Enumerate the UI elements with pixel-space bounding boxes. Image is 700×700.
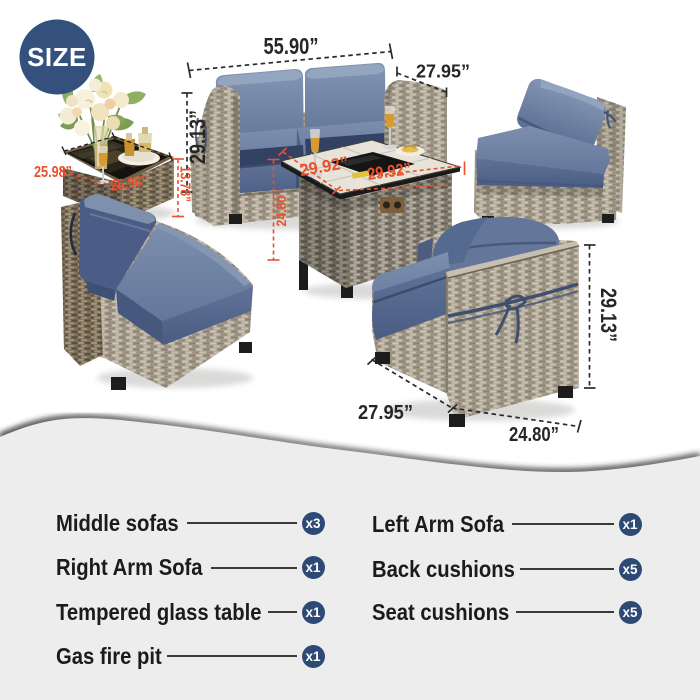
svg-text:27.95”: 27.95” (358, 402, 413, 424)
svg-text:SIZE: SIZE (27, 42, 87, 72)
svg-text:24.80”: 24.80” (509, 424, 559, 446)
svg-text:24.80”: 24.80” (273, 190, 289, 227)
svg-text:27.95”: 27.95” (416, 62, 470, 82)
svg-text:13.78”: 13.78” (177, 166, 194, 202)
svg-text:29.13”: 29.13” (185, 110, 210, 164)
svg-text:25.98”: 25.98” (34, 164, 72, 181)
svg-text:29.13”: 29.13” (596, 288, 621, 342)
svg-text:55.90”: 55.90” (264, 33, 319, 59)
